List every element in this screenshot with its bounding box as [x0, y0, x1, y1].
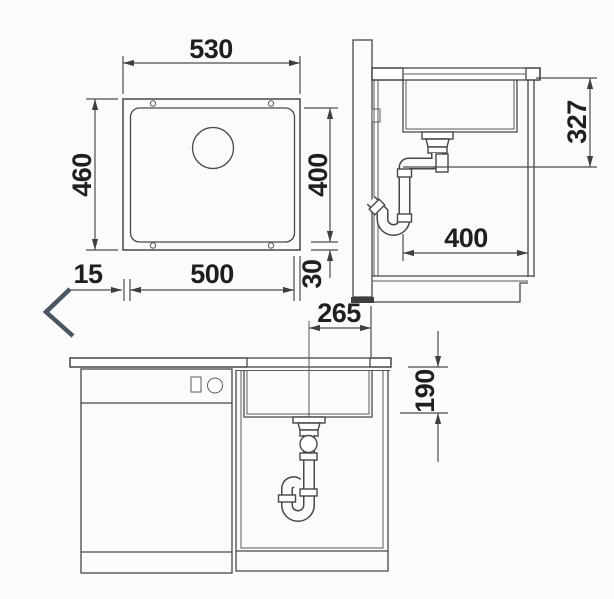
control-button-icon: [191, 377, 201, 392]
pipe-nut: [398, 214, 412, 222]
drain-nut: [428, 147, 447, 153]
countertop: [70, 358, 391, 367]
dim-label-530: 530: [189, 34, 233, 64]
dim-label-265: 265: [317, 298, 361, 328]
drain-flange: [293, 417, 325, 423]
sink-installation-drawing: 530 460 500 15: [0, 0, 614, 599]
pipe-nut: [398, 169, 412, 177]
dim-label-400-side: 400: [444, 223, 488, 253]
countertop-section: [372, 68, 540, 80]
dim-label-460: 460: [67, 153, 97, 197]
dim-label-30: 30: [297, 259, 327, 288]
pipe-nut: [279, 495, 296, 502]
dim-label-190: 190: [410, 369, 440, 413]
dim-label-327: 327: [562, 100, 592, 144]
technical-drawing-page: 530 460 500 15: [0, 0, 614, 599]
pipe-nut: [436, 154, 448, 172]
drain-flange: [422, 132, 453, 139]
pipe-nut: [300, 453, 317, 460]
wall-bracket: [372, 109, 380, 122]
dim-label-500: 500: [190, 259, 234, 289]
pipe-nut: [300, 489, 317, 496]
dim-label-15: 15: [73, 259, 103, 289]
drain-cup: [298, 423, 320, 430]
dim-label-400: 400: [303, 153, 333, 197]
control-knob-icon: [208, 378, 223, 393]
trap-elbow: [300, 436, 317, 453]
drain-cup: [426, 139, 449, 147]
